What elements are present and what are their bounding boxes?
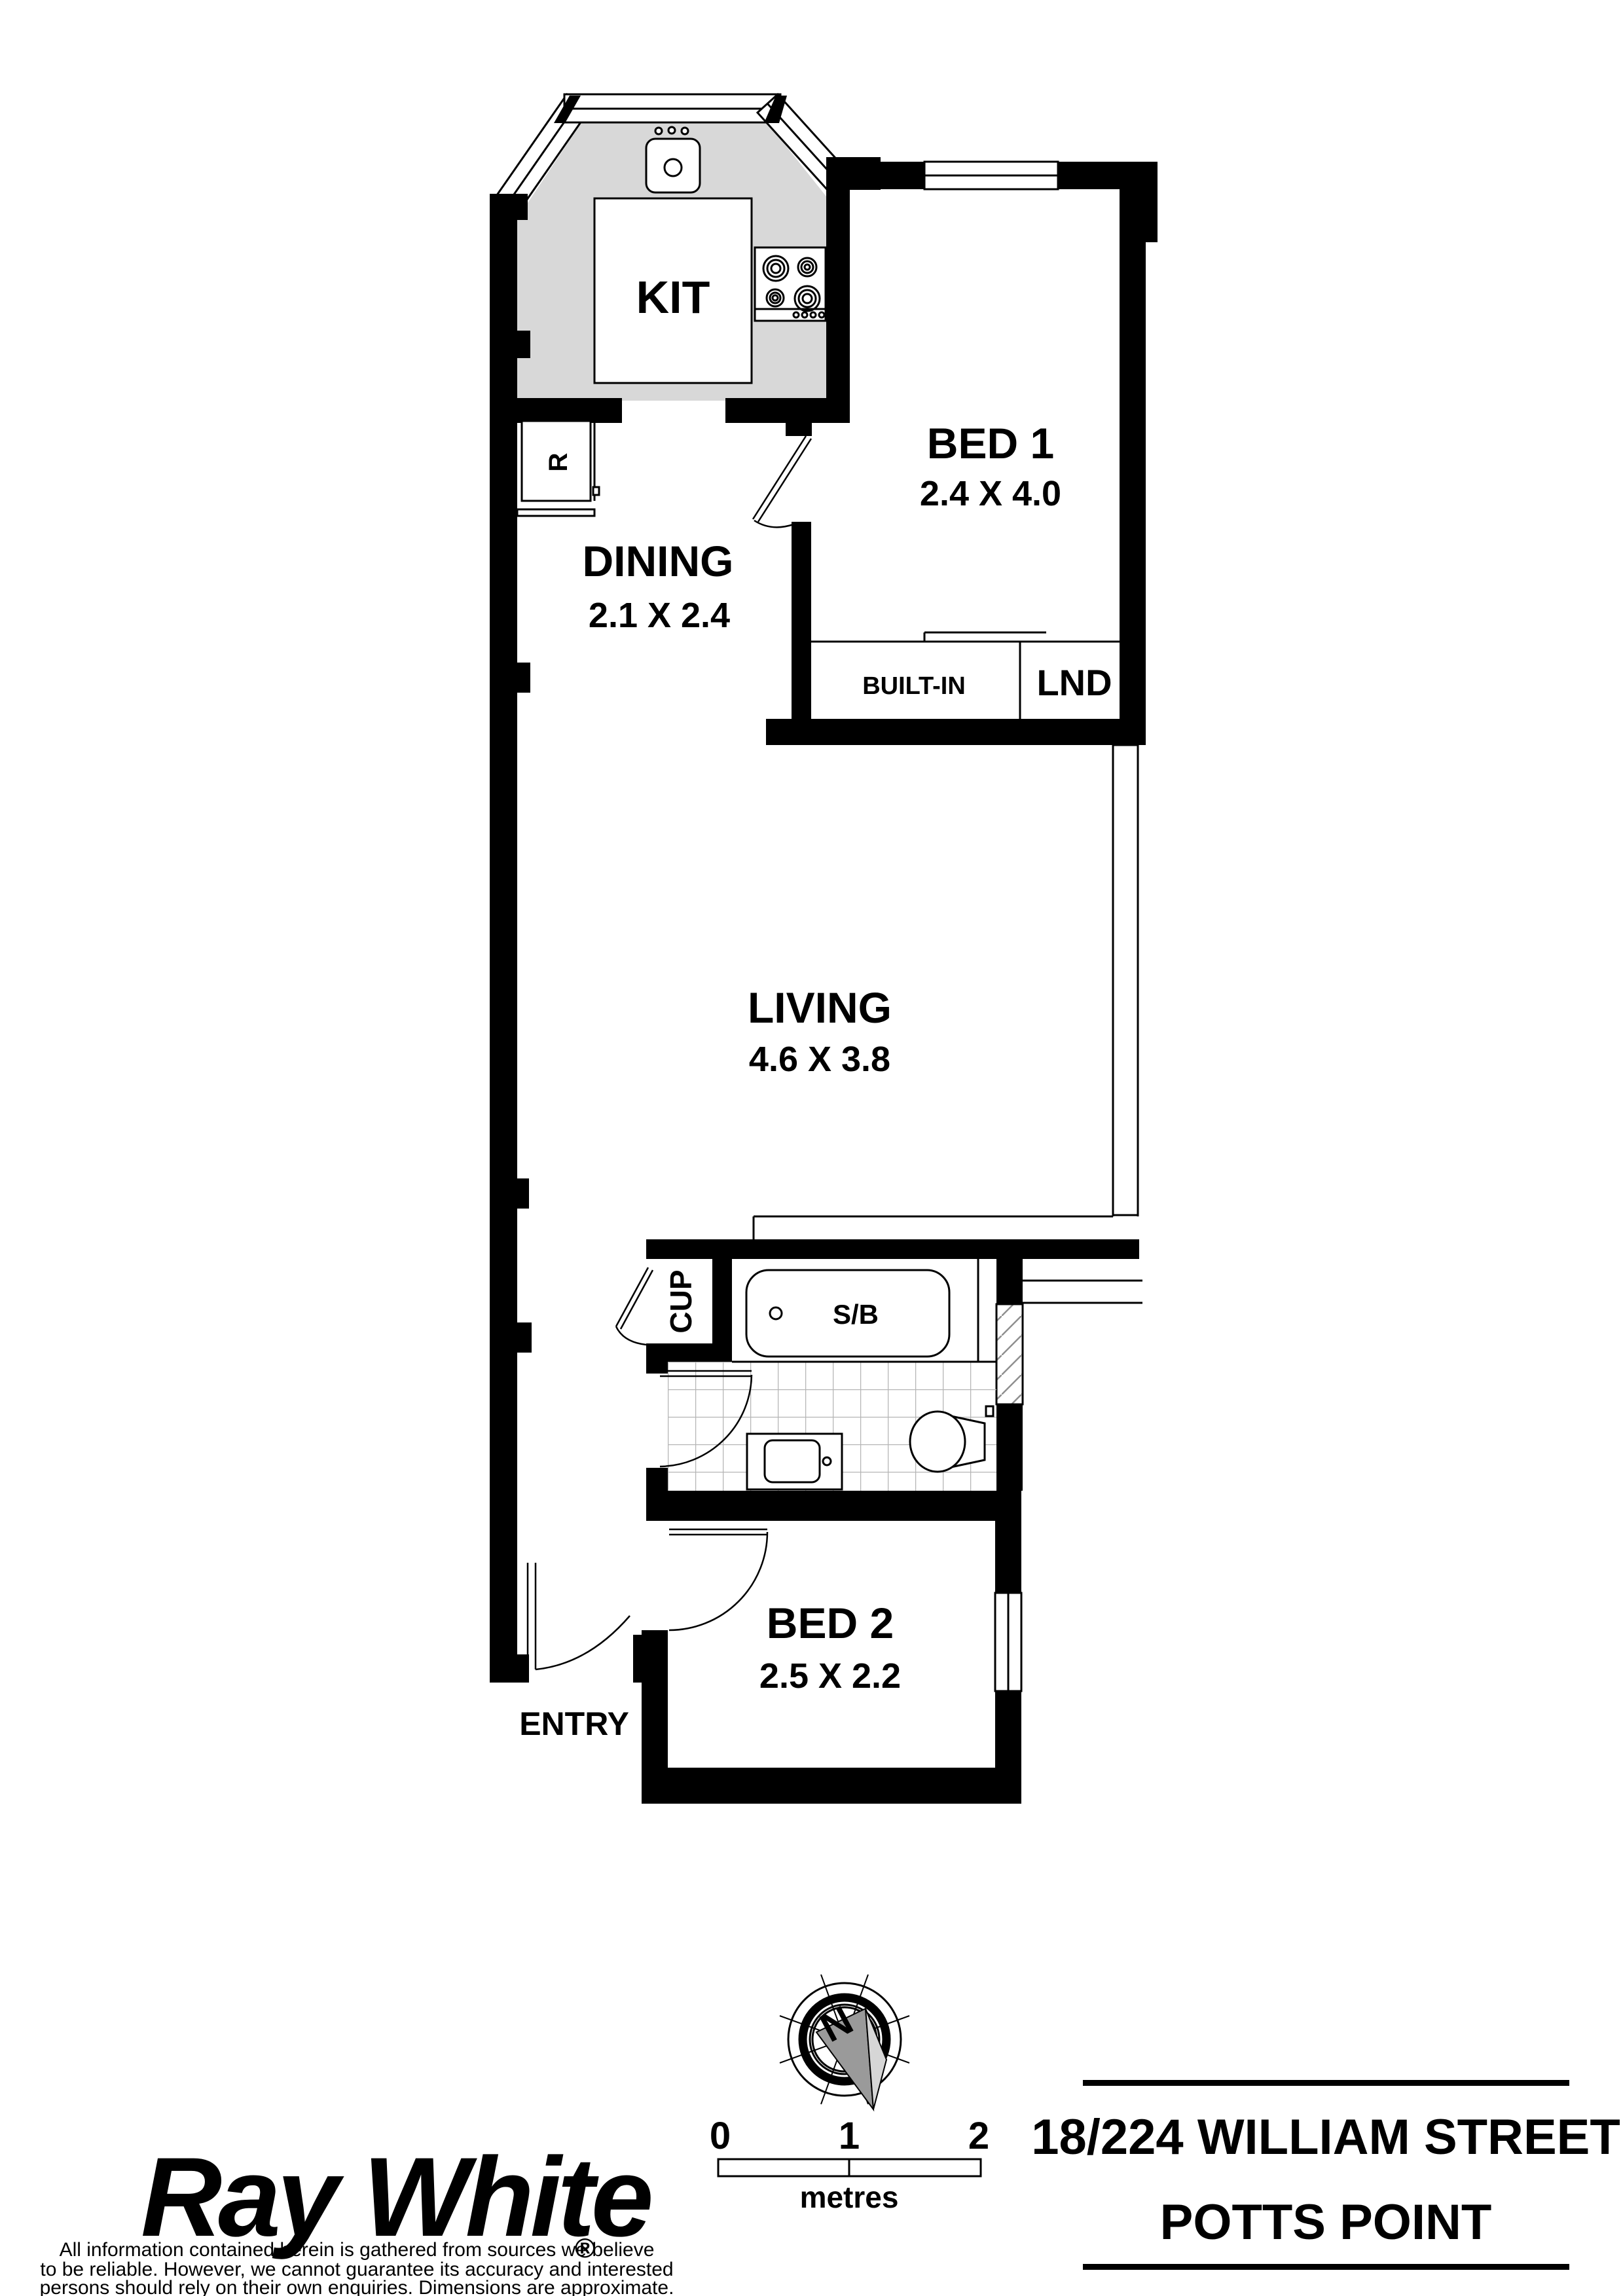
kitchen: KIT <box>492 94 852 401</box>
living: LIVING 4.6 X 3.8 <box>748 983 892 1079</box>
stove-icon <box>755 247 826 321</box>
walls <box>490 157 1158 1804</box>
bed2-window <box>995 1593 1021 1691</box>
scale-bar: 0 1 2 metres <box>710 2115 989 2214</box>
built-in-laundry: BUILT-IN LND <box>811 632 1120 719</box>
bed2-dims: 2.5 X 2.2 <box>759 1656 901 1696</box>
shower-bath-label: S/B <box>833 1299 879 1330</box>
dining: R DINING 2.1 X 2.4 <box>517 421 734 635</box>
floorplan-page: KIT <box>0 0 1623 2296</box>
branding: Ray White ® All information contained he… <box>40 2134 674 2296</box>
dining-dims: 2.1 X 2.4 <box>589 596 730 635</box>
entry-label: ENTRY <box>519 1705 629 1742</box>
bed2-door <box>669 1529 767 1630</box>
shelf <box>517 509 594 516</box>
dining-label: DINING <box>583 537 734 585</box>
built-in-label: BUILT-IN <box>862 672 966 700</box>
scale-tick-1: 1 <box>839 2115 860 2157</box>
living-dims: 4.6 X 3.8 <box>749 1040 890 1079</box>
cupboard-label: CUP <box>664 1269 698 1333</box>
scale-unit-label: metres <box>800 2180 899 2214</box>
bathroom-window <box>996 1304 1023 1404</box>
living-window-wall <box>1113 745 1138 1216</box>
fridge-icon: R <box>522 421 599 501</box>
vanity-icon <box>747 1434 842 1489</box>
bed2: BED 2 2.5 X 2.2 <box>669 1529 901 1696</box>
disclaimer-line1: All information contained herein is gath… <box>60 2239 655 2261</box>
bed1-dims: 2.4 X 4.0 <box>920 474 1061 513</box>
entry: ENTRY <box>519 1563 630 1742</box>
kitchen-door <box>753 436 811 527</box>
bed2-label: BED 2 <box>767 1599 894 1647</box>
address-block: 18/224 WILLIAM STREET POTTS POINT <box>1031 2080 1620 2270</box>
scale-tick-0: 0 <box>710 2115 731 2157</box>
bed1: BED 1 2.4 X 4.0 <box>920 419 1061 513</box>
living-label: LIVING <box>748 983 892 1032</box>
compass-icon: N <box>780 1975 909 2109</box>
bed1-window <box>924 162 1058 189</box>
bathroom: S/B CUP <box>616 1258 996 1491</box>
bed1-label: BED 1 <box>927 419 1054 467</box>
entry-door <box>528 1563 630 1669</box>
address-line1: 18/224 WILLIAM STREET <box>1031 2109 1620 2165</box>
floorplan-drawing: KIT <box>0 0 1623 2296</box>
address-line2: POTTS POINT <box>1160 2195 1492 2250</box>
scale-tick-2: 2 <box>968 2115 989 2157</box>
kitchen-label: KIT <box>636 272 710 323</box>
laundry-label: LND <box>1036 662 1112 703</box>
fridge-label: R <box>544 452 573 471</box>
disclaimer-line3: persons should rely on their own enquiri… <box>40 2277 674 2296</box>
cupboard-door <box>616 1267 653 1345</box>
